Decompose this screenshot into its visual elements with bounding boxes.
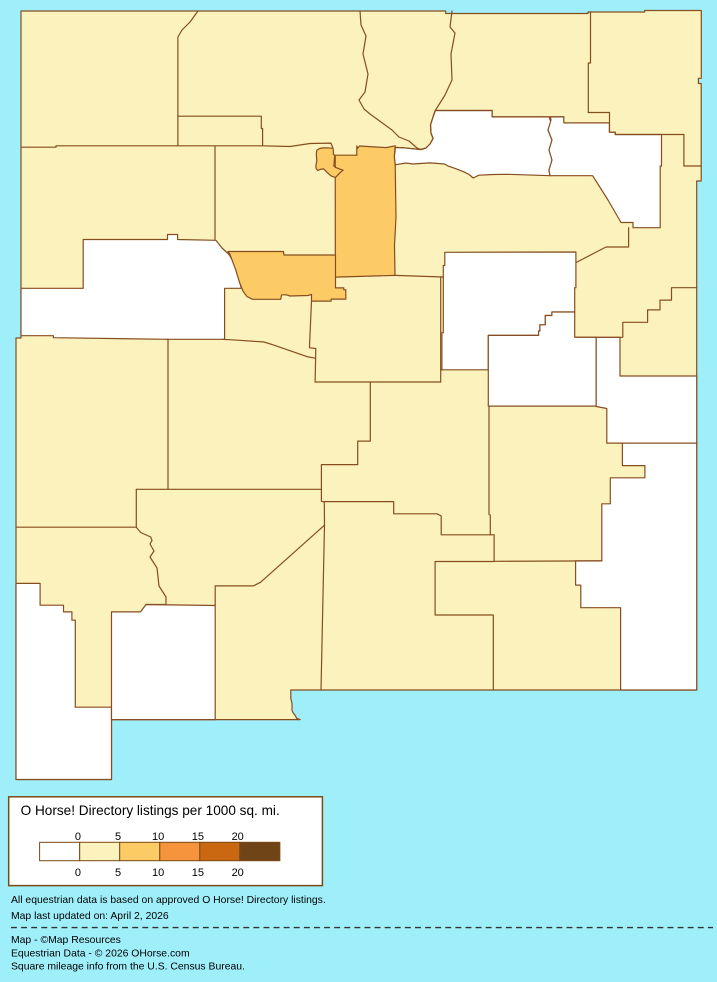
- svg-text:20: 20: [232, 831, 244, 843]
- svg-text:15: 15: [192, 867, 204, 879]
- svg-text:5: 5: [115, 867, 121, 879]
- svg-text:Map - ©Map Resources: Map - ©Map Resources: [11, 935, 121, 946]
- svg-text:0: 0: [75, 867, 81, 879]
- svg-text:Equestrian Data - © 2026 OHors: Equestrian Data - © 2026 OHorse.com: [11, 949, 190, 960]
- svg-text:20: 20: [232, 867, 244, 879]
- svg-text:15: 15: [192, 831, 204, 843]
- svg-text:All equestrian data is based o: All equestrian data is based on approved…: [11, 895, 326, 906]
- svg-text:Square mileage info from the U: Square mileage info from the U.S. Census…: [11, 962, 245, 973]
- svg-text:O Horse! Directory listings pe: O Horse! Directory listings per 1000 sq.…: [21, 803, 280, 818]
- svg-text:0: 0: [75, 831, 81, 843]
- svg-text:10: 10: [152, 831, 164, 843]
- svg-text:Map last updated on: April 2,: Map last updated on: April 2, 2026: [11, 911, 169, 922]
- svg-text:10: 10: [152, 867, 164, 879]
- svg-text:5: 5: [115, 831, 121, 843]
